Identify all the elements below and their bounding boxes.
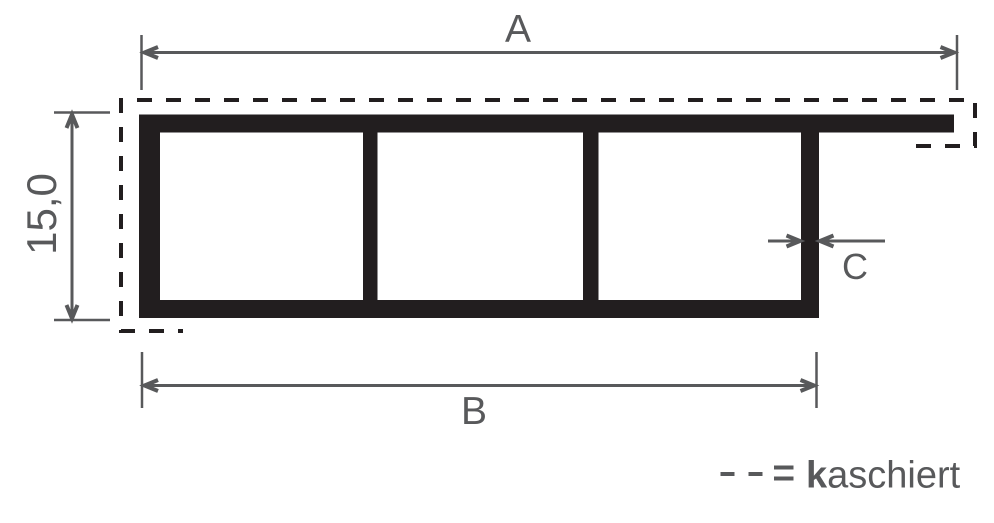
svg-text:B: B xyxy=(461,390,487,433)
svg-text:15,0: 15,0 xyxy=(18,173,65,255)
svg-text:A: A xyxy=(505,8,531,51)
svg-text:C: C xyxy=(842,246,868,287)
svg-text:kaschiert: kaschiert xyxy=(806,455,961,497)
